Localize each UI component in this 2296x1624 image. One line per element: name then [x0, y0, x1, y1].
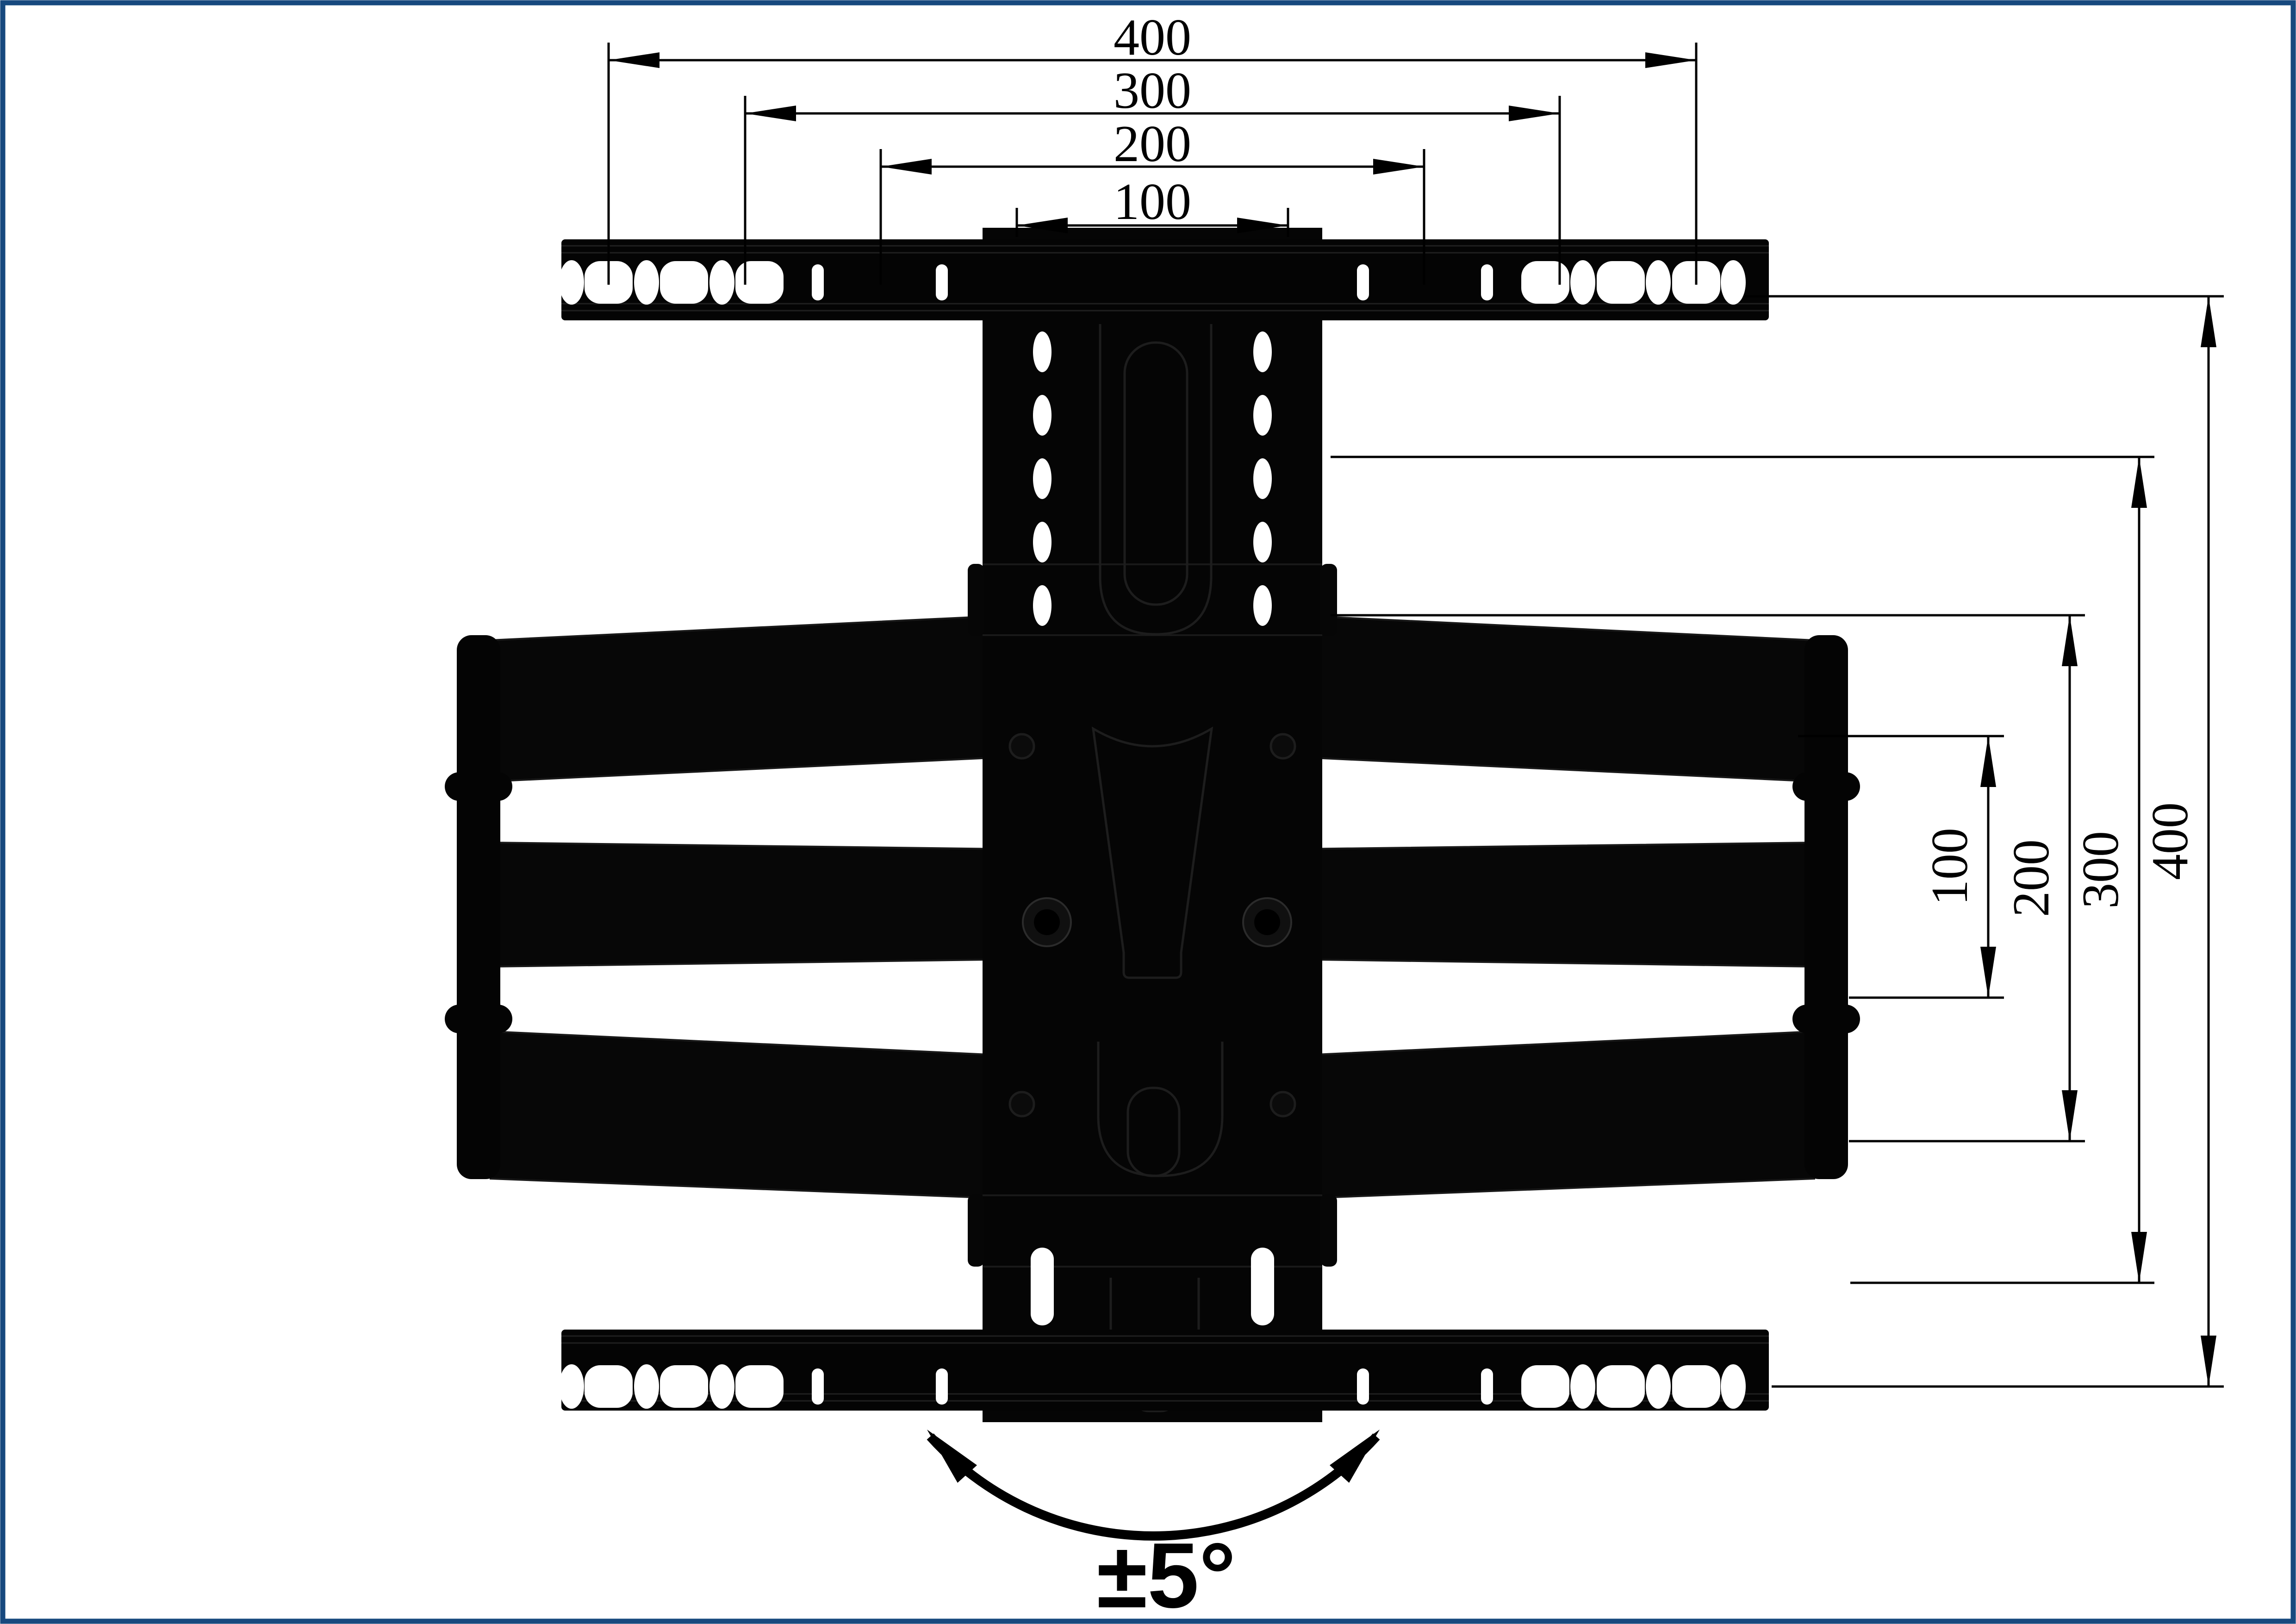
left-post-lower-knuckle: [445, 1005, 512, 1033]
dimension-value: 400: [1114, 9, 1191, 66]
left-post-upper-knuckle: [445, 772, 512, 801]
dimension-value: 300: [1114, 62, 1191, 119]
left-pivot-screw-head: [1034, 909, 1060, 935]
tv-mount-technical-diagram: 400 300 200 100: [0, 0, 2296, 1624]
vesa-plate-body: [983, 228, 1322, 1422]
swivel-angle-label: ±5°: [1097, 1524, 1236, 1624]
plate-ear-upper-right: [1320, 564, 1337, 636]
dimension-value: 400: [2141, 802, 2199, 880]
plate-ear-lower-right: [1320, 1194, 1337, 1267]
plate-notch-hole: [1010, 1092, 1034, 1116]
right-post-upper-knuckle: [1792, 772, 1860, 801]
plate-notch-hole: [1271, 1092, 1295, 1116]
left-pivot-post: [457, 635, 500, 1179]
bottom-mounting-rail: [559, 1330, 1769, 1411]
plate-ear-upper-left: [968, 564, 984, 636]
dimension-value: 100: [1921, 828, 1979, 906]
dimension-value: 300: [2072, 831, 2129, 909]
plate-notch-hole: [1271, 734, 1295, 758]
vesa-plate: [968, 228, 1337, 1422]
drawing-page: 400 300 200 100: [0, 0, 2296, 1624]
plate-notch-hole: [1010, 734, 1034, 758]
plate-ear-lower-left: [968, 1194, 984, 1267]
top-mounting-rail: [559, 239, 1769, 320]
right-post-lower-knuckle: [1792, 1005, 1860, 1033]
dimension-value: 200: [2003, 839, 2060, 917]
right-pivot-screw-head: [1254, 909, 1280, 935]
dimension-value: 100: [1114, 173, 1191, 231]
dimension-value: 200: [1114, 115, 1191, 173]
right-pivot-post: [1804, 635, 1848, 1179]
